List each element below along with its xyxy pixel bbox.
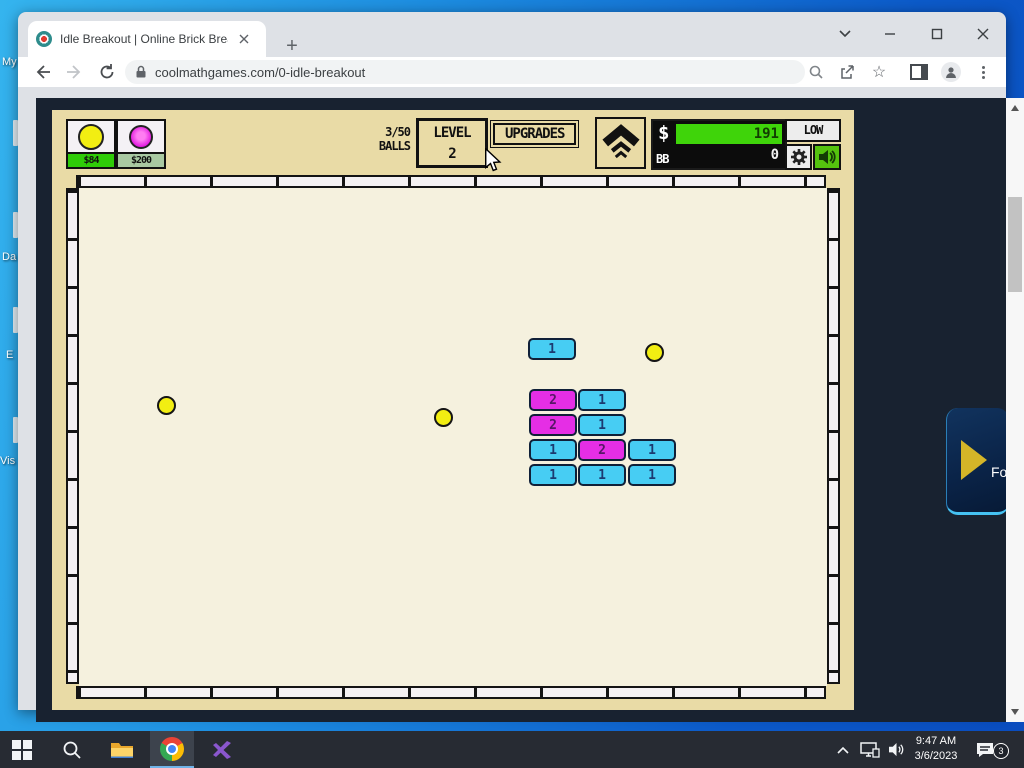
brick-magenta[interactable]: 2 <box>578 439 626 461</box>
brick-cyan[interactable]: 1 <box>628 464 676 486</box>
bookmark-star-icon[interactable]: ☆ <box>866 59 892 85</box>
reload-button-icon[interactable] <box>94 59 120 85</box>
buy-plasma-ball-button[interactable]: $200 <box>116 119 166 169</box>
desktop-icon-label[interactable]: E <box>6 349 13 361</box>
mouse-cursor <box>484 148 503 177</box>
visual-studio-taskbar-button[interactable] <box>200 731 244 768</box>
game-ball <box>434 408 453 427</box>
quality-toggle-button[interactable]: LOW <box>785 119 841 142</box>
brick-cyan[interactable]: 1 <box>528 338 576 360</box>
folder-icon <box>110 740 134 760</box>
browser-menu-icon[interactable] <box>970 59 996 85</box>
browser-window: Idle Breakout | Online Brick Break + <box>18 12 1006 710</box>
brick-cyan[interactable]: 1 <box>578 464 626 486</box>
bb-amount: 0 <box>676 146 782 165</box>
desktop-icon-label[interactable]: Vis <box>0 455 15 467</box>
file-explorer-button[interactable] <box>100 731 144 768</box>
site-favicon-icon <box>36 31 52 47</box>
brick-cyan[interactable]: 1 <box>578 414 626 436</box>
scroll-down-arrow-icon[interactable] <box>1011 709 1019 715</box>
network-display-icon[interactable] <box>855 731 885 768</box>
side-panel-icon[interactable] <box>906 59 932 85</box>
forward-button-icon[interactable] <box>61 59 87 85</box>
brick-cyan[interactable]: 1 <box>529 439 577 461</box>
tab-close-icon[interactable] <box>236 31 252 47</box>
game-canvas: $84 $200 3/50 BALLS LEVEL 2 <box>52 110 854 710</box>
clock-time: 9:47 AM <box>905 734 967 749</box>
lock-icon <box>135 65 147 79</box>
gear-icon <box>790 148 808 166</box>
scrollbar-thumb[interactable] <box>1008 197 1022 292</box>
chrome-taskbar-button[interactable] <box>150 731 194 768</box>
cash-amount: 191 <box>676 124 782 144</box>
maximize-button[interactable] <box>922 20 952 48</box>
magenta-ball-icon <box>129 125 153 149</box>
window-close-button[interactable] <box>968 20 998 48</box>
wall-left <box>66 188 79 684</box>
settings-button[interactable] <box>785 144 812 170</box>
playfield <box>79 188 827 686</box>
minimize-button[interactable] <box>875 20 905 48</box>
brick-cyan[interactable]: 1 <box>529 464 577 486</box>
level-indicator[interactable]: LEVEL 2 <box>416 118 488 168</box>
address-bar[interactable]: coolmathgames.com/0-idle-breakout <box>125 60 805 84</box>
upgrade-all-button[interactable] <box>595 117 646 169</box>
back-button-icon[interactable] <box>30 59 56 85</box>
yellow-ball-icon <box>78 124 104 150</box>
chevron-up-icon <box>600 123 642 163</box>
ball-price: $84 <box>68 152 114 167</box>
level-label: LEVEL <box>419 123 485 144</box>
desktop-icon-label[interactable]: Da <box>2 251 16 263</box>
chrome-icon <box>160 737 184 761</box>
brick-cyan[interactable]: 1 <box>578 389 626 411</box>
desktop: MyDaEVis Idle Breakout | Online Brick Br… <box>0 0 1024 768</box>
clock-date: 3/6/2023 <box>905 749 967 764</box>
balls-counter: 3/50 BALLS <box>352 125 410 153</box>
page-scrollbar[interactable] <box>1006 98 1024 722</box>
new-tab-button[interactable]: + <box>280 34 304 58</box>
game-ball <box>157 396 176 415</box>
windows-logo-icon <box>12 740 32 760</box>
url-text: coolmathgames.com/0-idle-breakout <box>155 65 365 80</box>
buy-basic-ball-button[interactable]: $84 <box>66 119 116 169</box>
wall-right <box>827 188 840 684</box>
taskbar-search-button[interactable] <box>50 731 94 768</box>
desktop-icon-label[interactable]: My <box>2 56 17 68</box>
taskbar: 9:47 AM 3/6/2023 3 <box>0 731 1024 768</box>
video-caption: Fo <box>991 464 1007 480</box>
level-value: 2 <box>419 144 485 165</box>
sound-toggle-button[interactable] <box>813 144 841 170</box>
share-icon[interactable] <box>834 59 860 85</box>
cash-symbol: $ <box>658 122 669 144</box>
game-ball <box>645 343 664 362</box>
scroll-up-arrow-icon[interactable] <box>1011 105 1019 111</box>
notification-icon <box>975 741 995 759</box>
tray-expand-chevron-icon[interactable] <box>828 731 858 768</box>
tab-title: Idle Breakout | Online Brick Break <box>60 32 228 46</box>
brick-magenta[interactable]: 2 <box>529 389 577 411</box>
notification-count-badge: 3 <box>993 743 1009 759</box>
floating-video-overlay[interactable]: Fo <box>946 408 1009 515</box>
wall-top <box>76 175 826 188</box>
tab-search-chevron-icon[interactable] <box>830 20 860 48</box>
brick-magenta[interactable]: 2 <box>529 414 577 436</box>
upgrades-button[interactable]: UPGRADES <box>490 120 579 148</box>
visual-studio-icon <box>210 738 234 762</box>
brick-cyan[interactable]: 1 <box>628 439 676 461</box>
play-icon <box>961 440 987 480</box>
profile-avatar[interactable] <box>938 59 964 85</box>
money-panel: $ 191 BB 0 <box>651 119 787 170</box>
page-content: $84 $200 3/50 BALLS LEVEL 2 <box>36 98 1024 722</box>
search-icon <box>62 740 82 760</box>
ball-price: $200 <box>118 152 164 167</box>
taskbar-clock[interactable]: 9:47 AM 3/6/2023 <box>905 734 967 764</box>
bb-label: BB <box>656 152 668 166</box>
speaker-icon <box>818 149 836 165</box>
wall-bottom <box>76 686 826 699</box>
search-icon[interactable] <box>803 59 829 85</box>
browser-toolbar: coolmathgames.com/0-idle-breakout ☆ <box>18 57 1006 87</box>
start-button[interactable] <box>0 731 44 768</box>
browser-tab[interactable]: Idle Breakout | Online Brick Break <box>28 21 266 57</box>
